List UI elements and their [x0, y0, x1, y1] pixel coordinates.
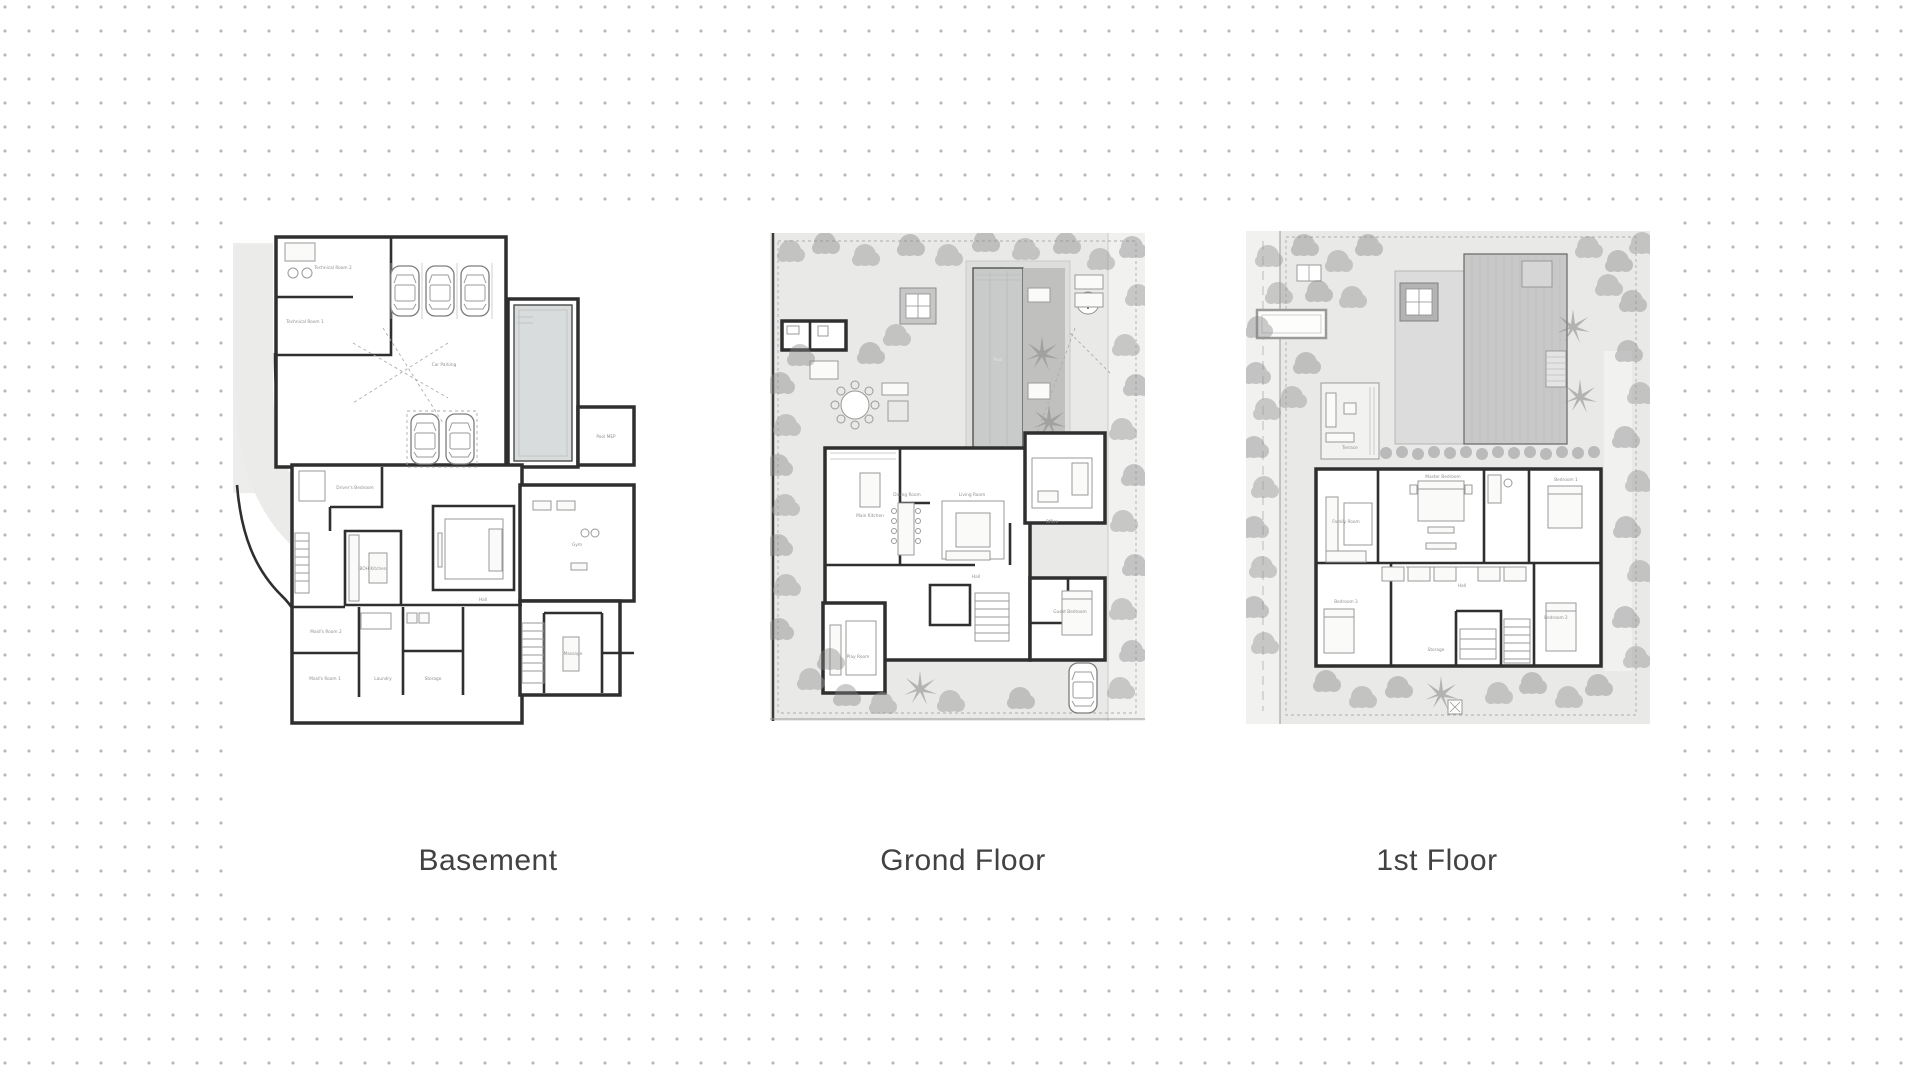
svg-text:Massage: Massage — [564, 651, 583, 657]
svg-text:Maid's Room 2: Maid's Room 2 — [310, 629, 342, 635]
svg-text:Guest Bedroom: Guest Bedroom — [1053, 609, 1086, 615]
svg-text:Hall: Hall — [1458, 583, 1466, 589]
svg-text:Storage: Storage — [1428, 647, 1445, 653]
svg-text:Main Kitchen: Main Kitchen — [856, 513, 884, 519]
svg-text:Storage: Storage — [425, 676, 442, 682]
svg-text:Gym: Gym — [572, 542, 582, 548]
entrance-room — [782, 321, 846, 350]
svg-text:Bedroom 1: Bedroom 1 — [1554, 477, 1578, 483]
floor-plan-ground: Pool Main Kitchen Dining Room Living Roo… — [770, 233, 1145, 721]
svg-text:Master Bedroom: Master Bedroom — [1425, 474, 1460, 480]
svg-text:Laundry: Laundry — [374, 676, 392, 682]
svg-text:Living Room: Living Room — [959, 492, 985, 498]
plan-caption-first-floor: 1st Floor — [1287, 843, 1587, 879]
svg-text:Pool: Pool — [994, 357, 1003, 363]
skylight-window — [1400, 283, 1438, 321]
basement-pool — [514, 305, 572, 461]
floor-plan-basement: Technical Room 2 Technical Room 1 Car Pa… — [233, 233, 637, 730]
car-icon — [411, 414, 439, 464]
plan-caption-basement: Basement — [338, 843, 638, 879]
floor-plans-page: Technical Room 2 Technical Room 1 Car Pa… — [0, 0, 1920, 1078]
svg-text:Family Room: Family Room — [1332, 519, 1359, 525]
svg-text:Hall: Hall — [972, 574, 980, 580]
walls — [276, 237, 634, 723]
floor-plan-first: Terrace Family Room Master Bedroom Bedro… — [1246, 231, 1650, 724]
svg-text:Terrace: Terrace — [1341, 445, 1358, 451]
svg-text:Hall: Hall — [479, 597, 487, 603]
svg-text:Technical Room 1: Technical Room 1 — [285, 319, 324, 325]
car-icon — [426, 266, 454, 316]
svg-text:Car Parking: Car Parking — [432, 362, 457, 368]
svg-text:Bedroom 2: Bedroom 2 — [1544, 615, 1568, 621]
svg-text:Maid's Room 1: Maid's Room 1 — [309, 676, 341, 682]
car-icon — [446, 414, 474, 464]
plan-caption-ground-floor: Grond Floor — [813, 843, 1113, 879]
window-symbol — [900, 288, 936, 324]
car-icon — [461, 266, 489, 316]
car-icon — [391, 266, 419, 316]
svg-text:Driver's Bedroom: Driver's Bedroom — [336, 485, 373, 491]
svg-text:Dining Room: Dining Room — [893, 492, 920, 498]
car-icon — [1069, 663, 1097, 713]
svg-text:Play Room: Play Room — [847, 654, 870, 660]
svg-text:Office: Office — [1046, 519, 1059, 525]
svg-text:Pool MEP: Pool MEP — [596, 434, 616, 440]
svg-text:Bedroom 3: Bedroom 3 — [1334, 599, 1358, 605]
svg-text:BOH Kitchen: BOH Kitchen — [359, 566, 386, 572]
svg-text:Technical Room 2: Technical Room 2 — [313, 265, 352, 271]
